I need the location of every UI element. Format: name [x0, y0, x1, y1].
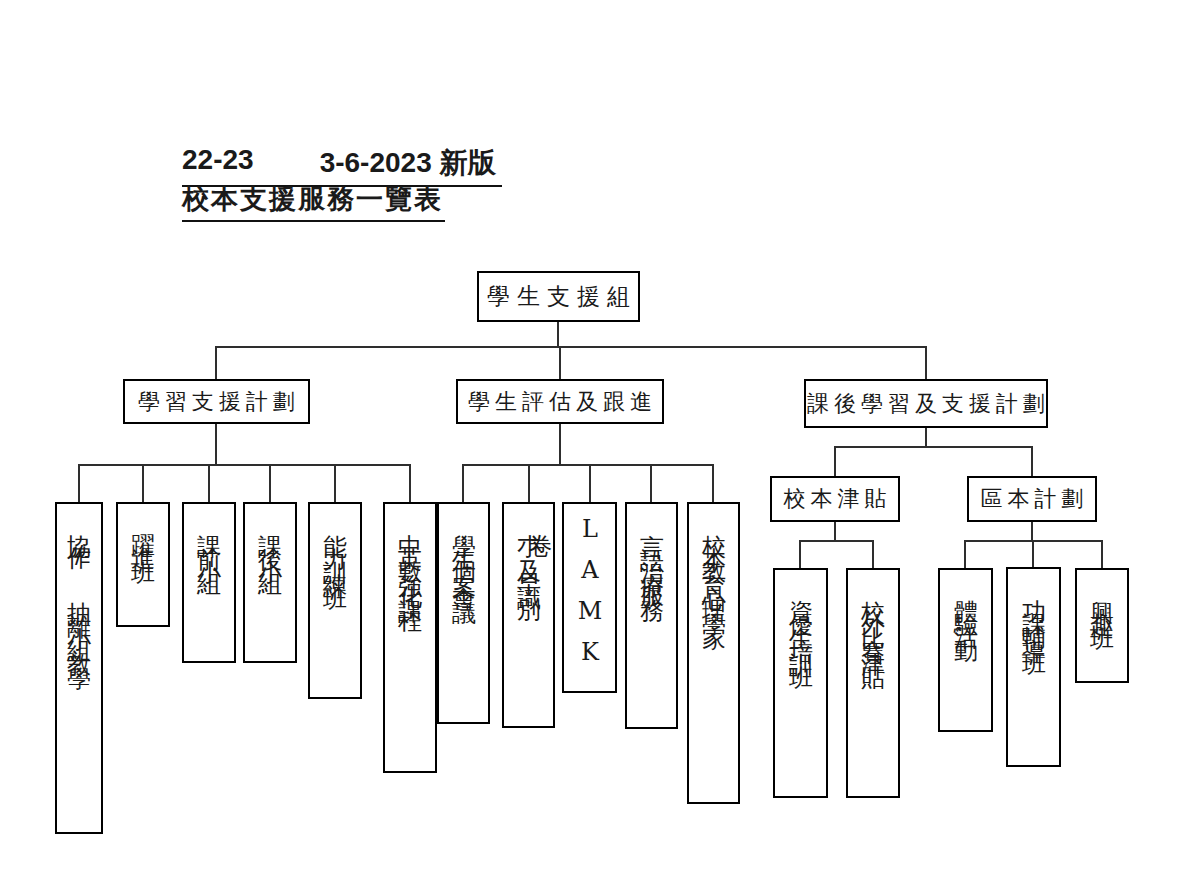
page-title: 校本支援服務一覽表	[182, 181, 445, 222]
node-school-based-educational-psychologist: 校本教育心理學家	[687, 502, 740, 804]
connector-branch3-stub	[925, 428, 927, 447]
node-ability-training-class: 能力訓練班	[308, 502, 362, 699]
node-gifted-student-training-class: 資優生培訓班	[773, 568, 828, 798]
connector-root-stub	[557, 322, 559, 347]
connector-drop-a3	[208, 464, 210, 502]
node-after-school-learning-support-plan: 課後學習及支援計劃	[804, 379, 1048, 428]
connector-branch3-rail	[835, 446, 1032, 448]
node-co-teaching-pull-out-group: 協作/抽離小組教學	[55, 502, 103, 834]
connector-drop-branch-2	[559, 346, 561, 380]
document-page: 22-23 3-6-2023 新版 校本支援服務一覽表 學生支援組 學習支援計劃…	[0, 0, 1200, 888]
connector-drop-school-grant	[834, 446, 836, 476]
connector-drop-e1	[964, 540, 966, 568]
node-lamk-paper: LAMK卷	[562, 502, 617, 693]
version-year: 22-23	[182, 144, 254, 182]
node-homework-tutorial-class: 功課輔導班	[1006, 567, 1061, 767]
connector-drop-b2	[528, 464, 530, 502]
node-district-based-scheme: 區本計劃	[967, 476, 1097, 522]
node-student-case-conference: 學生個案會議	[437, 502, 490, 724]
connector-level1-rail	[216, 346, 926, 348]
node-p1-early-identification: 小一及早識別	[502, 502, 555, 728]
node-pre-class-group: 課前小組	[182, 502, 236, 663]
node-speech-therapy-service: 言語治療服務	[625, 502, 678, 729]
connector-drop-b3	[589, 464, 591, 502]
connector-drop-b1	[462, 464, 464, 502]
node-experiential-activities: 體驗活動	[938, 568, 993, 732]
connector-drop-d1	[799, 540, 801, 568]
connector-school-grant-rail	[800, 540, 873, 542]
connector-drop-a4	[269, 464, 271, 502]
connector-drop-e2	[1032, 540, 1034, 568]
connector-district-scheme-stub	[1031, 522, 1033, 541]
node-external-competition-subsidy: 校外比賽津貼	[846, 568, 900, 798]
node-learning-support-plan: 學習支援計劃	[123, 379, 310, 424]
connector-drop-branch-3	[925, 346, 927, 380]
connector-drop-b5	[712, 464, 714, 502]
connector-drop-b4	[650, 464, 652, 502]
connector-school-grant-stub	[834, 522, 836, 541]
connector-drop-a5	[334, 464, 336, 502]
node-leap-class: 躍進班	[116, 502, 170, 627]
connector-drop-a1	[78, 464, 80, 502]
node-school-based-grant: 校本津貼	[770, 476, 900, 522]
node-chi-eng-math-enhancement-course: 中英數強化課程	[383, 502, 437, 773]
node-interest-class: 興趣班	[1075, 568, 1129, 683]
connector-drop-district-scheme	[1031, 446, 1033, 476]
connector-branch1-rail	[79, 464, 410, 466]
node-after-class-group: 課後小組	[243, 502, 297, 663]
connector-drop-branch-1	[215, 346, 217, 380]
connector-branch2-stub	[559, 424, 561, 465]
connector-drop-d2	[872, 540, 874, 568]
connector-drop-a2	[142, 464, 144, 502]
node-student-assessment-follow-up: 學生評估及跟進	[456, 379, 664, 424]
connector-branch1-stub	[215, 424, 217, 465]
version-date: 3-6-2023 新版	[320, 144, 496, 182]
node-student-support-group: 學生支援組	[477, 271, 640, 322]
connector-drop-a6	[409, 464, 411, 502]
connector-drop-e3	[1101, 540, 1103, 568]
